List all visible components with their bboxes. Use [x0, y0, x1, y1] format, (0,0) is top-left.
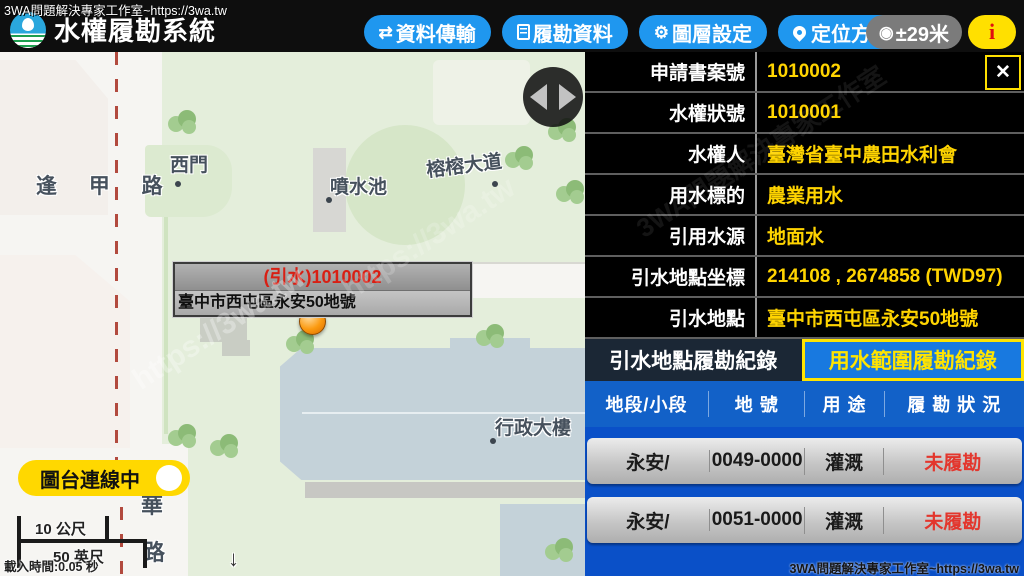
gps-accuracy-badge[interactable]: ◉ ±29米: [866, 15, 962, 49]
field-row-intake-coords: 引水地點坐標 214108 , 2674858 (TWD97): [585, 257, 1024, 298]
field-row-license-no: 水權狀號 1010001: [585, 93, 1024, 134]
cell-use: 灌溉: [804, 507, 882, 534]
cell-use: 灌溉: [804, 448, 882, 475]
map-connection-status-badge: 圖台連線中: [18, 460, 190, 496]
field-row-right-holder: 水權人 臺灣省臺中農田水利會: [585, 134, 1024, 175]
callout-title: (引水)1010002: [175, 264, 470, 291]
column-header-section: 地段/小段: [585, 391, 708, 417]
poi-dot: [326, 197, 332, 203]
tab-intake-location-record[interactable]: 引水地點履勘紀錄: [585, 339, 802, 381]
field-value: 214108 , 2674858 (TWD97): [755, 257, 1024, 296]
tree-icon: [168, 424, 198, 450]
field-label: 申請書案號: [585, 52, 755, 91]
gps-accuracy-icon: ◉: [879, 24, 894, 41]
tab-label: 用水範圍履勘紀錄: [829, 345, 997, 375]
callout-address: 臺中市西屯區永安50地號: [175, 291, 470, 315]
down-arrow-icon: ↓: [228, 546, 239, 572]
document-icon: [517, 24, 530, 40]
record-tabs: 引水地點履勘紀錄 用水範圍履勘紀錄: [585, 339, 1024, 381]
map-road-east: [460, 262, 585, 298]
field-value: 臺灣省臺中農田水利會: [755, 134, 1024, 173]
field-value: 臺中市西屯區永安50地號: [755, 298, 1024, 337]
cell-status: 未履勘: [883, 507, 1022, 534]
field-label: 引水地點坐標: [585, 257, 755, 296]
field-row-water-source: 引用水源 地面水: [585, 216, 1024, 257]
scale-line: [17, 539, 147, 543]
parcel-table-body: 永安/ 0049-0000 灌溉 未履勘 永安/ 0051-0000 灌溉 未履…: [585, 427, 1024, 576]
close-icon: ✕: [995, 62, 1011, 83]
app-window: 逢 甲 路 西門 噴水池 榕榕大道 行政大樓 華 路 ↓ (引水)1010002…: [0, 0, 1024, 576]
column-header-use: 用 途: [804, 391, 883, 417]
field-label: 引水地點: [585, 298, 755, 337]
field-row-application-no: 申請書案號 1010002: [585, 52, 1024, 93]
parcel-table-header: 地段/小段 地 號 用 途 履 勘 狀 況: [585, 381, 1024, 427]
tree-icon: [556, 180, 585, 206]
map-building-west: [0, 255, 130, 448]
scale-tick: [143, 539, 147, 568]
status-indicator-dot: [156, 465, 182, 491]
poi-label-admin-building: 行政大樓: [495, 413, 571, 440]
column-header-parcel: 地 號: [708, 391, 805, 417]
cell-section: 永安/: [587, 507, 709, 534]
location-pin-icon: [790, 23, 808, 41]
tree-icon: [210, 434, 240, 460]
table-row[interactable]: 永安/ 0051-0000 灌溉 未履勘: [587, 497, 1022, 543]
watermark-bottom-right: 3WA問題解決專家工作室~https://3wa.tw: [789, 558, 1019, 576]
survey-data-label: 履勘資料: [533, 18, 613, 47]
cell-status: 未履勘: [883, 448, 1022, 475]
field-label: 水權人: [585, 134, 755, 173]
table-row[interactable]: 永安/ 0049-0000 灌溉 未履勘: [587, 438, 1022, 484]
data-transfer-button[interactable]: ⇄ 資料傳輸: [364, 15, 491, 49]
field-label: 引用水源: [585, 216, 755, 255]
tab-label: 引水地點履勘紀錄: [609, 345, 777, 375]
tab-water-use-range-record[interactable]: 用水範圍履勘紀錄: [802, 339, 1024, 381]
cell-parcel: 0051-0000: [709, 509, 805, 531]
field-label: 水權狀號: [585, 93, 755, 132]
field-value: 農業用水: [755, 175, 1024, 214]
toolbar: ⇄ 資料傳輸 履勘資料 ⚙ 圖層設定 定位方式: [364, 15, 907, 49]
tree-icon: [545, 538, 575, 564]
load-time-label: 載入時間:0.05 秒: [4, 556, 98, 575]
layer-settings-button[interactable]: ⚙ 圖層設定: [639, 15, 767, 49]
poi-dot: [492, 181, 498, 187]
water-waves-icon: [10, 35, 46, 48]
gps-accuracy-label: ±29米: [896, 18, 949, 47]
poi-dot: [490, 438, 496, 444]
panel-collapse-toggle[interactable]: [523, 67, 583, 127]
chevron-left-icon: [530, 84, 547, 110]
survey-data-button[interactable]: 履勘資料: [502, 15, 628, 49]
chevron-right-icon: [559, 84, 576, 110]
map-building-pale: [433, 60, 530, 125]
tree-icon: [168, 110, 198, 136]
map-callout[interactable]: (引水)1010002 臺中市西屯區永安50地號: [173, 262, 472, 317]
map-building-small-1: [200, 316, 247, 342]
tree-icon: [476, 324, 506, 350]
cell-parcel: 0049-0000: [709, 450, 805, 472]
poi-label-fountain: 噴水池: [330, 172, 387, 199]
info-icon: i: [989, 19, 995, 44]
water-drop-icon: [22, 18, 34, 31]
field-value: 1010002: [755, 52, 1024, 91]
map-canvas[interactable]: 逢 甲 路 西門 噴水池 榕榕大道 行政大樓 華 路 ↓ (引水)1010002…: [0, 52, 585, 576]
field-value: 1010001: [755, 93, 1024, 132]
gear-icon: ⚙: [654, 24, 669, 41]
field-value: 地面水: [755, 216, 1024, 255]
field-label: 用水標的: [585, 175, 755, 214]
street-label-fengjia-road: 逢 甲 路: [36, 170, 176, 200]
map-building-small-2: [222, 340, 250, 356]
field-row-intake-location: 引水地點 臺中市西屯區永安50地號: [585, 298, 1024, 339]
water-right-detail-panel: ✕ 申請書案號 1010002 水權狀號 1010001 水權人 臺灣省臺中農田…: [585, 52, 1024, 576]
column-header-status: 履 勘 狀 況: [884, 391, 1024, 417]
map-path-strip: [305, 482, 585, 498]
scale-tick: [105, 516, 109, 543]
sync-icon: ⇄: [379, 24, 393, 41]
scale-meters-label: 10 公尺: [35, 518, 86, 539]
connection-status-label: 圖台連線中: [40, 464, 140, 493]
field-row-water-use: 用水標的 農業用水: [585, 175, 1024, 216]
tree-icon: [505, 146, 535, 172]
close-panel-button[interactable]: ✕: [985, 55, 1021, 90]
layer-settings-label: 圖層設定: [672, 18, 752, 47]
cell-section: 永安/: [587, 448, 709, 475]
road-centerline-north: [115, 52, 118, 470]
info-button[interactable]: i: [968, 15, 1016, 49]
poi-label-west-gate: 西門: [170, 150, 208, 177]
poi-dot: [175, 181, 181, 187]
data-transfer-label: 資料傳輸: [396, 18, 476, 47]
watermark-top-left: 3WA問題解決專家工作室~https://3wa.tw: [4, 0, 227, 19]
